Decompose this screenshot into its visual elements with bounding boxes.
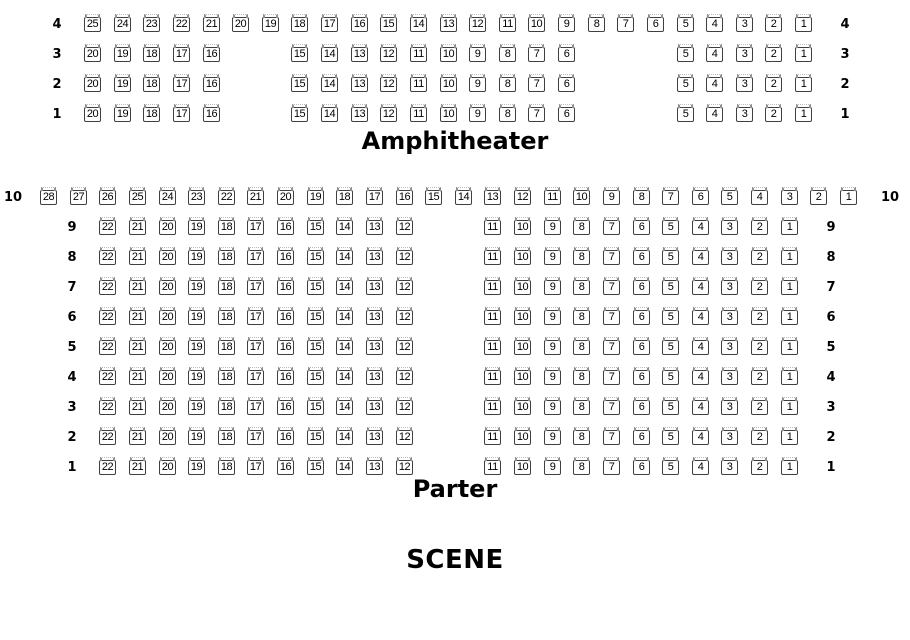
seat[interactable]: 3 xyxy=(721,430,738,445)
seat[interactable]: 9 xyxy=(544,250,561,265)
seat[interactable]: 19 xyxy=(188,400,205,415)
seat-number: 4 xyxy=(698,251,704,264)
seat-number: 22 xyxy=(102,281,113,294)
seat[interactable]: 8 xyxy=(573,460,590,475)
seat-number: 9 xyxy=(609,191,615,204)
seat[interactable]: 18 xyxy=(218,460,235,475)
seat[interactable]: 13 xyxy=(484,190,501,205)
seat[interactable]: 13 xyxy=(366,460,383,475)
seat-number: 8 xyxy=(579,251,585,264)
seat-number: 11 xyxy=(487,461,497,474)
seat[interactable]: 3 xyxy=(721,280,738,295)
seat[interactable]: 21 xyxy=(129,310,146,325)
seat[interactable]: 10 xyxy=(514,460,531,475)
seat[interactable]: 3 xyxy=(781,190,798,205)
seat[interactable]: 2 xyxy=(751,400,768,415)
seat[interactable]: 21 xyxy=(247,190,264,205)
seat[interactable]: 16 xyxy=(277,250,294,265)
seat[interactable]: 14 xyxy=(455,190,472,205)
seat[interactable]: 21 xyxy=(129,220,146,235)
seat-number: 12 xyxy=(399,221,410,234)
seat-number: 11 xyxy=(487,341,497,354)
seat[interactable]: 20 xyxy=(159,460,176,475)
seat[interactable]: 10 xyxy=(514,280,531,295)
seat-number: 5 xyxy=(668,311,674,324)
seat[interactable]: 2 xyxy=(751,430,768,445)
seat[interactable]: 22 xyxy=(99,460,116,475)
seat[interactable]: 1 xyxy=(781,220,798,235)
seat[interactable]: 7 xyxy=(603,220,620,235)
seat[interactable]: 12 xyxy=(396,250,413,265)
seat[interactable]: 3 xyxy=(721,460,738,475)
seat[interactable]: 4 xyxy=(751,190,768,205)
seat[interactable]: 1 xyxy=(781,400,798,415)
seat[interactable]: 25 xyxy=(129,190,146,205)
seat[interactable]: 20 xyxy=(159,400,176,415)
seat[interactable]: 19 xyxy=(188,340,205,355)
seat[interactable]: 11 xyxy=(484,370,501,385)
seat[interactable]: 5 xyxy=(662,340,679,355)
seat[interactable]: 14 xyxy=(336,460,353,475)
seat[interactable]: 7 xyxy=(603,280,620,295)
seat-number: 10 xyxy=(517,341,528,354)
seat[interactable]: 12 xyxy=(396,310,413,325)
seat[interactable]: 10 xyxy=(514,400,531,415)
seat[interactable]: 11 xyxy=(544,190,561,205)
seat[interactable]: 13 xyxy=(366,430,383,445)
seat-number: 14 xyxy=(339,311,350,324)
seat-number: 3 xyxy=(727,311,733,324)
seat-number: 16 xyxy=(280,371,291,384)
seat[interactable]: 28 xyxy=(40,190,57,205)
seat[interactable]: 22 xyxy=(218,190,235,205)
seat[interactable]: 4 xyxy=(692,460,709,475)
seat[interactable]: 22 xyxy=(99,370,116,385)
seat[interactable]: 15 xyxy=(307,250,324,265)
seat[interactable]: 22 xyxy=(99,430,116,445)
seat[interactable]: 8 xyxy=(573,400,590,415)
seat-number: 10 xyxy=(517,311,528,324)
seat-number: 8 xyxy=(579,371,585,384)
seat[interactable]: 14 xyxy=(336,370,353,385)
seat[interactable]: 7 xyxy=(603,340,620,355)
seat[interactable]: 7 xyxy=(662,190,679,205)
seat-number: 18 xyxy=(339,191,350,204)
seat[interactable]: 10 xyxy=(514,250,531,265)
seat[interactable]: 15 xyxy=(307,340,324,355)
seat[interactable]: 22 xyxy=(99,220,116,235)
seat[interactable]: 10 xyxy=(514,430,531,445)
seat-number: 21 xyxy=(132,311,143,324)
seat-number: 13 xyxy=(369,341,380,354)
seat[interactable]: 9 xyxy=(544,340,561,355)
seat[interactable]: 16 xyxy=(277,220,294,235)
seat-number: 3 xyxy=(727,341,733,354)
seat[interactable]: 6 xyxy=(633,220,650,235)
seat-number: 20 xyxy=(162,281,173,294)
seat[interactable]: 15 xyxy=(307,430,324,445)
seat[interactable]: 11 xyxy=(484,310,501,325)
seat[interactable]: 20 xyxy=(159,220,176,235)
seat-number: 1 xyxy=(787,281,793,294)
seat-number: 9 xyxy=(550,221,556,234)
seat-number: 4 xyxy=(757,191,763,204)
seat-number: 1 xyxy=(787,311,793,324)
seat[interactable]: 4 xyxy=(692,280,709,295)
seat[interactable]: 4 xyxy=(692,220,709,235)
seat[interactable]: 11 xyxy=(484,400,501,415)
seat[interactable]: 12 xyxy=(396,460,413,475)
seat[interactable]: 20 xyxy=(159,250,176,265)
seat-number: 22 xyxy=(102,431,113,444)
seat[interactable]: 21 xyxy=(129,340,146,355)
seat[interactable]: 11 xyxy=(484,340,501,355)
seat[interactable]: 19 xyxy=(188,370,205,385)
seat-number: 15 xyxy=(310,311,321,324)
seat[interactable]: 22 xyxy=(99,340,116,355)
seat[interactable]: 1 xyxy=(781,280,798,295)
seat[interactable]: 5 xyxy=(662,310,679,325)
seat[interactable]: 5 xyxy=(662,460,679,475)
seat-number: 4 xyxy=(698,371,704,384)
section-parter: 2827262524232221201918171615141312111098… xyxy=(0,0,910,640)
seat[interactable]: 7 xyxy=(603,310,620,325)
seat[interactable]: 6 xyxy=(633,340,650,355)
seat[interactable]: 14 xyxy=(336,430,353,445)
seat[interactable]: 4 xyxy=(692,400,709,415)
seat[interactable]: 8 xyxy=(573,220,590,235)
seat-number: 9 xyxy=(550,281,556,294)
seat[interactable]: 6 xyxy=(633,430,650,445)
seat[interactable]: 16 xyxy=(277,310,294,325)
seat-number: 16 xyxy=(280,221,291,234)
seat[interactable]: 14 xyxy=(336,340,353,355)
seat[interactable]: 3 xyxy=(721,310,738,325)
seat-number: 28 xyxy=(43,191,54,204)
seat[interactable]: 1 xyxy=(781,250,798,265)
seat[interactable]: 7 xyxy=(603,250,620,265)
seat-number: 14 xyxy=(339,221,350,234)
seat[interactable]: 16 xyxy=(396,190,413,205)
seat[interactable]: 17 xyxy=(247,220,264,235)
seat[interactable]: 15 xyxy=(307,460,324,475)
seat[interactable]: 5 xyxy=(662,220,679,235)
seat-number: 11 xyxy=(487,311,497,324)
seat[interactable]: 2 xyxy=(751,280,768,295)
seat[interactable]: 4 xyxy=(692,310,709,325)
seat[interactable]: 9 xyxy=(544,460,561,475)
seat[interactable]: 5 xyxy=(662,280,679,295)
seat-number: 23 xyxy=(191,191,202,204)
seat[interactable]: 2 xyxy=(751,460,768,475)
seat[interactable]: 17 xyxy=(247,460,264,475)
seat[interactable]: 8 xyxy=(573,250,590,265)
seat[interactable]: 3 xyxy=(721,220,738,235)
seat[interactable]: 20 xyxy=(159,370,176,385)
seat[interactable]: 11 xyxy=(484,250,501,265)
seat[interactable]: 21 xyxy=(129,400,146,415)
seat[interactable]: 6 xyxy=(692,190,709,205)
seat[interactable]: 11 xyxy=(484,220,501,235)
seat[interactable]: 14 xyxy=(336,280,353,295)
seat[interactable]: 15 xyxy=(425,190,442,205)
seat-number: 11 xyxy=(487,281,497,294)
seat[interactable]: 26 xyxy=(99,190,116,205)
seat[interactable]: 21 xyxy=(129,250,146,265)
seat[interactable]: 15 xyxy=(307,370,324,385)
seat[interactable]: 17 xyxy=(247,280,264,295)
seat[interactable]: 19 xyxy=(188,280,205,295)
seat[interactable]: 18 xyxy=(218,340,235,355)
seat[interactable]: 19 xyxy=(188,430,205,445)
seat[interactable]: 6 xyxy=(633,250,650,265)
seat-number: 12 xyxy=(517,191,528,204)
seat[interactable]: 4 xyxy=(692,340,709,355)
seat[interactable]: 9 xyxy=(544,310,561,325)
seat-number: 20 xyxy=(162,221,173,234)
seat[interactable]: 4 xyxy=(692,250,709,265)
row-label-right: 9 xyxy=(814,220,848,235)
seat[interactable]: 22 xyxy=(99,310,116,325)
seat[interactable]: 3 xyxy=(721,370,738,385)
seat[interactable]: 18 xyxy=(218,280,235,295)
seat-number: 12 xyxy=(399,281,410,294)
seat[interactable]: 12 xyxy=(396,400,413,415)
seat[interactable]: 18 xyxy=(218,250,235,265)
seat[interactable]: 18 xyxy=(218,310,235,325)
seat[interactable]: 17 xyxy=(247,340,264,355)
seat-number: 17 xyxy=(250,461,261,474)
seat-number: 11 xyxy=(487,251,497,264)
seat[interactable]: 9 xyxy=(544,370,561,385)
seat-number: 11 xyxy=(487,221,497,234)
seat[interactable]: 18 xyxy=(218,430,235,445)
seat[interactable]: 10 xyxy=(514,370,531,385)
seat[interactable]: 12 xyxy=(514,190,531,205)
seat[interactable]: 7 xyxy=(603,370,620,385)
seat-number: 14 xyxy=(339,341,350,354)
seat[interactable]: 22 xyxy=(99,250,116,265)
seat[interactable]: 9 xyxy=(544,280,561,295)
seat[interactable]: 5 xyxy=(662,370,679,385)
seat[interactable]: 5 xyxy=(662,250,679,265)
seat[interactable]: 8 xyxy=(573,340,590,355)
seat[interactable]: 22 xyxy=(99,400,116,415)
seat[interactable]: 27 xyxy=(70,190,87,205)
seat[interactable]: 19 xyxy=(188,460,205,475)
row-label-left: 5 xyxy=(55,340,89,355)
seat[interactable]: 6 xyxy=(633,400,650,415)
seat[interactable]: 14 xyxy=(336,400,353,415)
seat-number: 13 xyxy=(487,191,498,204)
seat-number: 19 xyxy=(191,461,202,474)
seat[interactable]: 23 xyxy=(188,190,205,205)
seat[interactable]: 15 xyxy=(307,220,324,235)
seat[interactable]: 17 xyxy=(247,400,264,415)
seat[interactable]: 16 xyxy=(277,400,294,415)
row-label-left: 3 xyxy=(55,400,89,415)
seat[interactable]: 15 xyxy=(307,310,324,325)
seat[interactable]: 6 xyxy=(633,280,650,295)
seat-number: 7 xyxy=(668,191,674,204)
seat[interactable]: 6 xyxy=(633,310,650,325)
seat-number: 7 xyxy=(609,341,615,354)
row-label-left: 6 xyxy=(55,310,89,325)
seat[interactable]: 18 xyxy=(218,400,235,415)
seat[interactable]: 10 xyxy=(514,340,531,355)
seat[interactable]: 12 xyxy=(396,280,413,295)
seat[interactable]: 13 xyxy=(366,250,383,265)
seat[interactable]: 1 xyxy=(781,340,798,355)
seat-number: 8 xyxy=(579,401,585,414)
seat[interactable]: 8 xyxy=(573,370,590,385)
seat[interactable]: 3 xyxy=(721,340,738,355)
seat-number: 5 xyxy=(668,431,674,444)
row-label-right: 10 xyxy=(873,190,907,205)
seat[interactable]: 16 xyxy=(277,280,294,295)
seat[interactable]: 6 xyxy=(633,370,650,385)
seat-number: 20 xyxy=(162,251,173,264)
seat-number: 6 xyxy=(639,221,645,234)
seat[interactable]: 4 xyxy=(692,370,709,385)
seat[interactable]: 20 xyxy=(159,340,176,355)
seat[interactable]: 8 xyxy=(573,430,590,445)
seat[interactable]: 11 xyxy=(484,430,501,445)
seat[interactable]: 1 xyxy=(781,310,798,325)
seat[interactable]: 16 xyxy=(277,340,294,355)
seat[interactable]: 5 xyxy=(721,190,738,205)
seat-number: 8 xyxy=(579,281,585,294)
seat[interactable]: 18 xyxy=(218,220,235,235)
seat[interactable]: 21 xyxy=(129,370,146,385)
seat[interactable]: 17 xyxy=(247,250,264,265)
seat[interactable]: 10 xyxy=(514,220,531,235)
seat[interactable]: 12 xyxy=(396,340,413,355)
seat-number: 2 xyxy=(757,461,763,474)
seat[interactable]: 9 xyxy=(544,220,561,235)
seat[interactable]: 1 xyxy=(840,190,857,205)
seat-number: 16 xyxy=(280,311,291,324)
seat[interactable]: 13 xyxy=(366,280,383,295)
row-label-right: 5 xyxy=(814,340,848,355)
seat[interactable]: 11 xyxy=(484,280,501,295)
stage-label: SCENE xyxy=(0,545,910,575)
seat-number: 16 xyxy=(280,341,291,354)
seat-number: 6 xyxy=(698,191,704,204)
seat[interactable]: 2 xyxy=(751,370,768,385)
seat[interactable]: 18 xyxy=(218,370,235,385)
seat[interactable]: 1 xyxy=(781,430,798,445)
seat[interactable]: 22 xyxy=(99,280,116,295)
seat-number: 7 xyxy=(609,401,615,414)
seat[interactable]: 21 xyxy=(129,460,146,475)
seat-number: 20 xyxy=(162,311,173,324)
seat[interactable]: 12 xyxy=(396,370,413,385)
seat[interactable]: 2 xyxy=(751,340,768,355)
seat-number: 3 xyxy=(727,401,733,414)
seat[interactable]: 13 xyxy=(366,400,383,415)
seat[interactable]: 9 xyxy=(544,400,561,415)
seat[interactable]: 13 xyxy=(366,310,383,325)
seat[interactable]: 13 xyxy=(366,340,383,355)
seat[interactable]: 20 xyxy=(159,310,176,325)
seat[interactable]: 12 xyxy=(396,430,413,445)
seat-number: 18 xyxy=(221,311,232,324)
seat[interactable]: 16 xyxy=(277,370,294,385)
seat[interactable]: 8 xyxy=(573,280,590,295)
seat-number: 12 xyxy=(399,401,410,414)
seat-number: 19 xyxy=(191,221,202,234)
seat[interactable]: 1 xyxy=(781,460,798,475)
seat[interactable]: 20 xyxy=(277,190,294,205)
seat[interactable]: 14 xyxy=(336,220,353,235)
seat[interactable]: 17 xyxy=(366,190,383,205)
seat[interactable]: 3 xyxy=(721,250,738,265)
seat[interactable]: 3 xyxy=(721,400,738,415)
seat[interactable]: 20 xyxy=(159,430,176,445)
seat[interactable]: 24 xyxy=(159,190,176,205)
seat[interactable]: 19 xyxy=(307,190,324,205)
seat[interactable]: 19 xyxy=(188,220,205,235)
seat[interactable]: 21 xyxy=(129,280,146,295)
seat[interactable]: 2 xyxy=(751,310,768,325)
seat-number: 2 xyxy=(757,221,763,234)
seat[interactable]: 16 xyxy=(277,460,294,475)
seat[interactable]: 17 xyxy=(247,310,264,325)
seat[interactable]: 15 xyxy=(307,280,324,295)
seat-number: 21 xyxy=(132,431,143,444)
seat-number: 3 xyxy=(727,221,733,234)
seat[interactable]: 19 xyxy=(188,250,205,265)
seat-number: 20 xyxy=(162,461,173,474)
seat[interactable]: 5 xyxy=(662,430,679,445)
seat[interactable]: 2 xyxy=(810,190,827,205)
seat[interactable]: 14 xyxy=(336,250,353,265)
seat[interactable]: 14 xyxy=(336,310,353,325)
seat[interactable]: 11 xyxy=(484,460,501,475)
seat[interactable]: 18 xyxy=(336,190,353,205)
seating-chart: 2524232221201918171615141312111098765432… xyxy=(0,0,910,640)
seat[interactable]: 15 xyxy=(307,400,324,415)
seat[interactable]: 8 xyxy=(633,190,650,205)
seat[interactable]: 13 xyxy=(366,370,383,385)
seat[interactable]: 5 xyxy=(662,400,679,415)
seat[interactable]: 17 xyxy=(247,370,264,385)
seat[interactable]: 17 xyxy=(247,430,264,445)
seat[interactable]: 13 xyxy=(366,220,383,235)
seat[interactable]: 1 xyxy=(781,370,798,385)
seat[interactable]: 10 xyxy=(573,190,590,205)
seat[interactable]: 16 xyxy=(277,430,294,445)
seat[interactable]: 21 xyxy=(129,430,146,445)
seat-number: 1 xyxy=(787,251,793,264)
seat[interactable]: 7 xyxy=(603,460,620,475)
seat[interactable]: 4 xyxy=(692,430,709,445)
seat[interactable]: 7 xyxy=(603,430,620,445)
seat-number: 6 xyxy=(639,461,645,474)
seat[interactable]: 9 xyxy=(603,190,620,205)
seat[interactable]: 7 xyxy=(603,400,620,415)
seat[interactable]: 20 xyxy=(159,280,176,295)
seat[interactable]: 10 xyxy=(514,310,531,325)
seat[interactable]: 6 xyxy=(633,460,650,475)
seat[interactable]: 9 xyxy=(544,430,561,445)
seat[interactable]: 2 xyxy=(751,250,768,265)
seat[interactable]: 2 xyxy=(751,220,768,235)
seat[interactable]: 8 xyxy=(573,310,590,325)
seat[interactable]: 12 xyxy=(396,220,413,235)
seat[interactable]: 19 xyxy=(188,310,205,325)
